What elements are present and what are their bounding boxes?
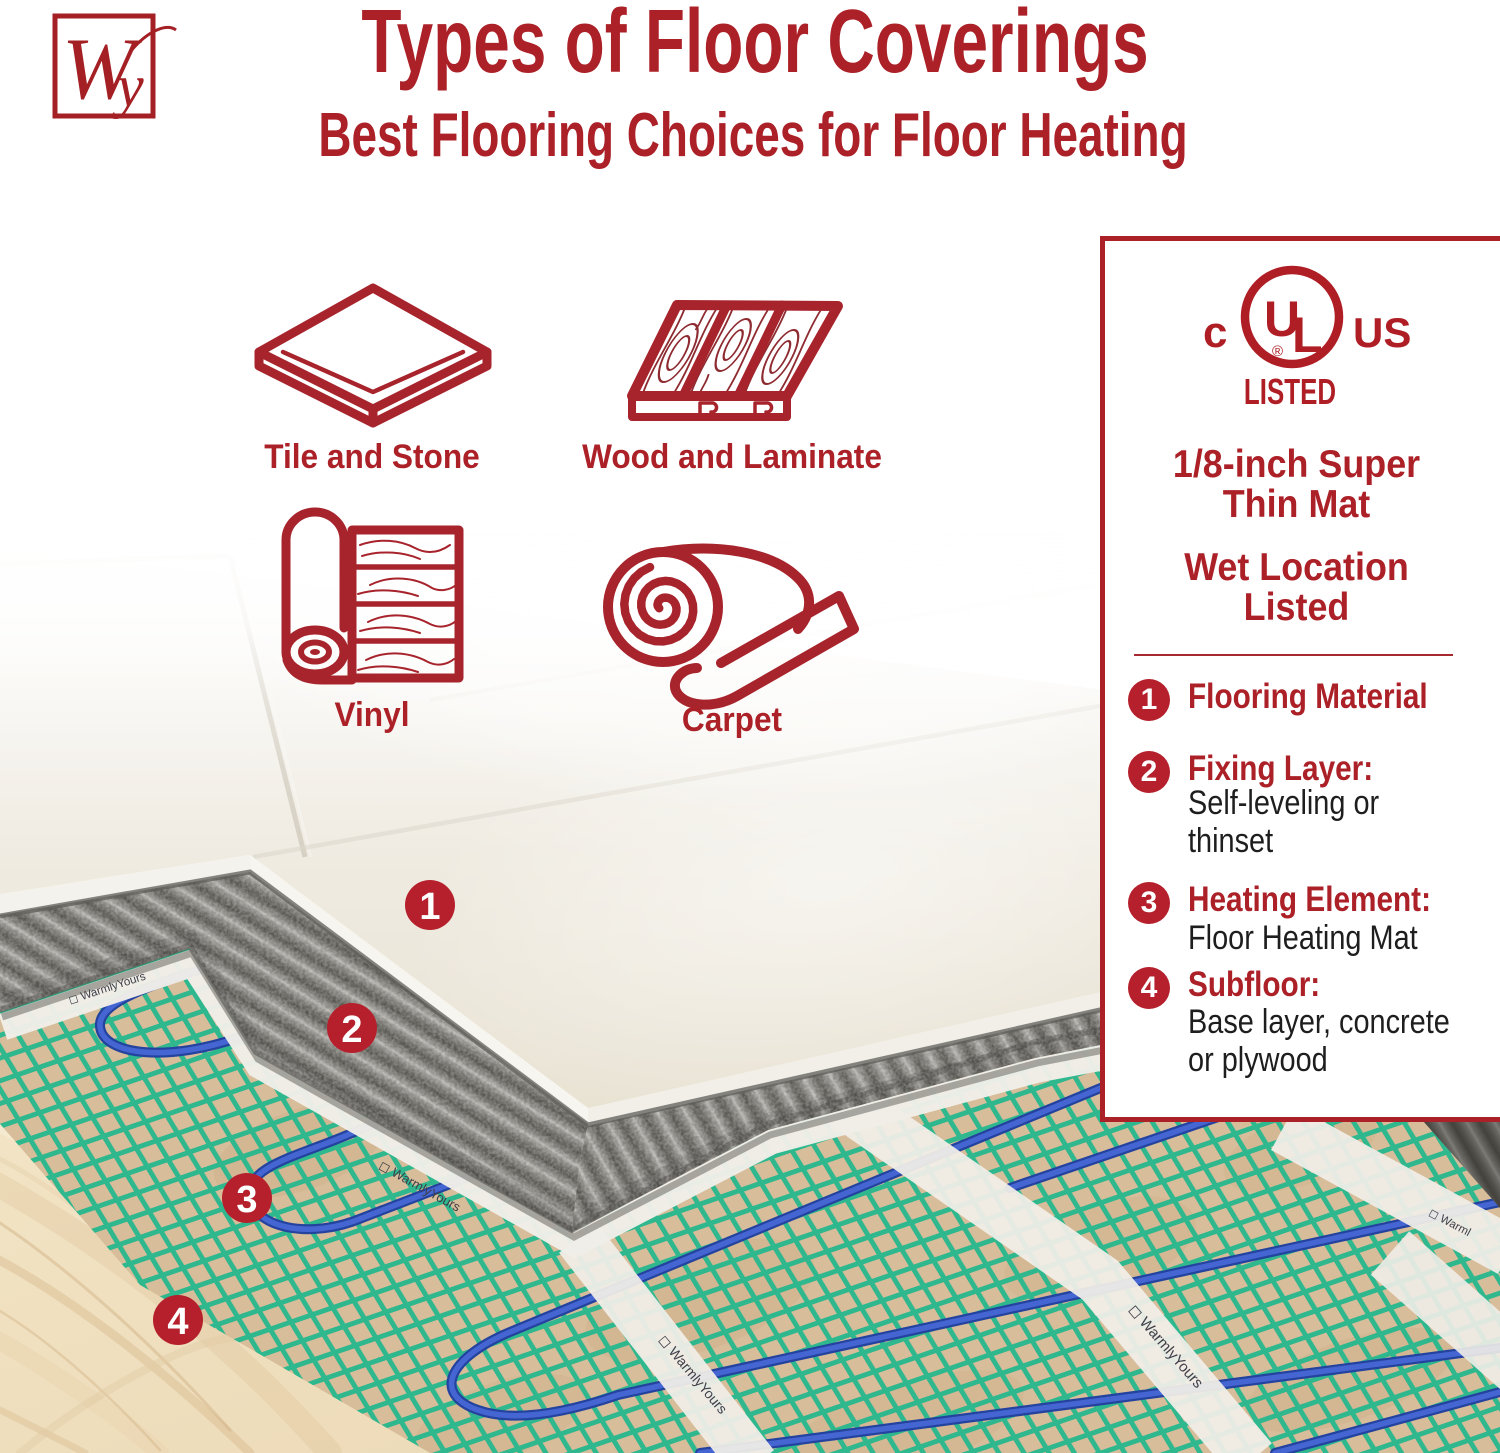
svg-text:®: ®	[1272, 343, 1283, 360]
svg-text:US: US	[1353, 309, 1411, 356]
svg-text:2: 2	[341, 1009, 362, 1051]
svg-text:3: 3	[236, 1179, 257, 1221]
svg-text:4: 4	[167, 1301, 188, 1343]
svg-text:c: c	[1203, 308, 1227, 357]
svg-text:L: L	[1292, 307, 1323, 363]
svg-text:LISTED: LISTED	[1244, 372, 1336, 412]
svg-text:1: 1	[419, 886, 440, 928]
